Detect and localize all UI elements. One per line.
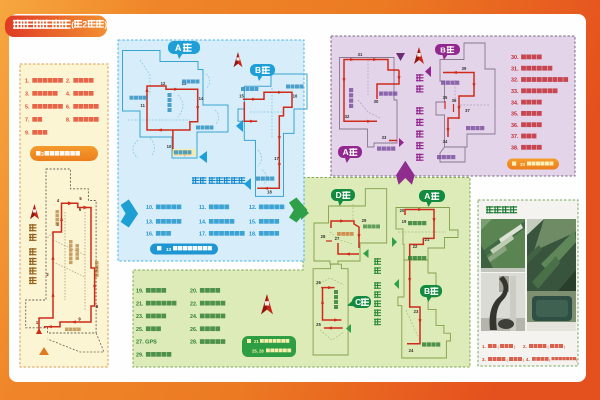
svg-text:39: 39 — [462, 66, 467, 71]
svg-text:35: 35 — [443, 95, 448, 100]
svg-text:25, 28: 25, 28 — [252, 349, 264, 354]
svg-text:2: 2 — [82, 20, 87, 30]
svg-text:21: 21 — [425, 237, 430, 242]
svg-text:21.: 21. — [136, 301, 144, 307]
svg-text:11.: 11. — [199, 205, 207, 211]
svg-text:20.: 20. — [190, 289, 198, 295]
svg-text:17.: 17. — [199, 232, 207, 238]
svg-text:B: B — [424, 286, 430, 296]
svg-text:17: 17 — [274, 156, 279, 161]
svg-text:22.: 22. — [190, 301, 198, 307]
svg-text:25.: 25. — [136, 327, 144, 333]
svg-text:11: 11 — [140, 103, 145, 108]
svg-text:A: A — [343, 147, 349, 157]
svg-text:D: D — [336, 190, 342, 200]
svg-text:12: 12 — [161, 81, 166, 86]
svg-text:7.: 7. — [25, 118, 30, 124]
svg-text:12.: 12. — [249, 205, 257, 211]
svg-text:B: B — [255, 65, 261, 75]
svg-text:18.: 18. — [249, 232, 257, 238]
svg-text:16.: 16. — [146, 232, 154, 238]
svg-text:37.: 37. — [511, 134, 519, 140]
svg-text:B: B — [440, 45, 446, 54]
svg-text:A: A — [175, 43, 182, 53]
svg-text:C: C — [355, 297, 361, 307]
svg-text:30: 30 — [374, 99, 379, 104]
svg-text:19: 19 — [402, 219, 407, 224]
svg-text:1.: 1. — [482, 344, 486, 349]
svg-text:1.: 1. — [25, 79, 30, 85]
svg-text:4.: 4. — [526, 357, 530, 362]
svg-text:36.: 36. — [511, 123, 519, 129]
svg-text:14.: 14. — [199, 220, 207, 226]
svg-text:34: 34 — [443, 139, 448, 144]
svg-text:3.: 3. — [482, 357, 486, 362]
svg-text:26.: 26. — [190, 327, 198, 333]
svg-text:35.: 35. — [511, 112, 519, 118]
svg-text:32: 32 — [345, 114, 350, 119]
svg-text:16: 16 — [293, 94, 298, 99]
svg-text:13: 13 — [166, 247, 172, 252]
svg-text:24.: 24. — [190, 314, 198, 320]
svg-text:A: A — [424, 191, 430, 201]
svg-text:8.: 8. — [66, 118, 71, 124]
svg-text:33.: 33. — [511, 89, 519, 95]
svg-text:38.: 38. — [511, 146, 519, 152]
svg-text:2.: 2. — [523, 344, 527, 349]
svg-text:24: 24 — [409, 348, 414, 353]
svg-text:26: 26 — [316, 280, 321, 285]
svg-text:13.: 13. — [146, 220, 154, 226]
svg-text:20: 20 — [400, 208, 405, 213]
svg-text:21: 21 — [254, 339, 259, 344]
svg-text:22: 22 — [413, 244, 418, 249]
svg-text:15: 15 — [239, 94, 244, 99]
svg-text:34.: 34. — [511, 100, 519, 106]
svg-text:30.: 30. — [511, 55, 519, 61]
svg-text:29.: 29. — [136, 353, 144, 359]
svg-text:33: 33 — [382, 135, 387, 140]
svg-text:15.: 15. — [249, 220, 257, 226]
svg-text:18: 18 — [267, 190, 272, 195]
svg-text:2.: 2. — [66, 79, 71, 85]
svg-text:31: 31 — [358, 52, 363, 57]
svg-text:29: 29 — [362, 218, 367, 223]
svg-text:5.: 5. — [25, 105, 30, 111]
svg-text:36: 36 — [452, 98, 457, 103]
svg-text:4.: 4. — [66, 92, 71, 98]
svg-text:25: 25 — [316, 322, 321, 327]
svg-text:3.: 3. — [25, 92, 30, 98]
svg-text:28: 28 — [321, 234, 326, 239]
svg-text:31.: 31. — [511, 66, 519, 72]
svg-text:10: 10 — [167, 144, 172, 149]
svg-text:28.: 28. — [190, 340, 198, 346]
svg-text:3: 3 — [41, 152, 44, 158]
svg-text:27. GPS: 27. GPS — [136, 340, 157, 346]
svg-text:10.: 10. — [146, 205, 154, 211]
svg-text:6.: 6. — [66, 105, 71, 111]
svg-text:33: 33 — [520, 162, 526, 167]
svg-text:37: 37 — [465, 108, 470, 113]
svg-text:(: ( — [71, 20, 74, 30]
svg-text:23: 23 — [414, 309, 419, 314]
svg-text:14: 14 — [199, 96, 204, 101]
svg-text:27: 27 — [335, 236, 340, 241]
svg-text:23.: 23. — [136, 314, 144, 320]
svg-text:19.: 19. — [136, 289, 144, 295]
svg-text:): ) — [104, 20, 107, 30]
svg-text:9.: 9. — [25, 131, 30, 137]
svg-text:32.: 32. — [511, 78, 519, 84]
